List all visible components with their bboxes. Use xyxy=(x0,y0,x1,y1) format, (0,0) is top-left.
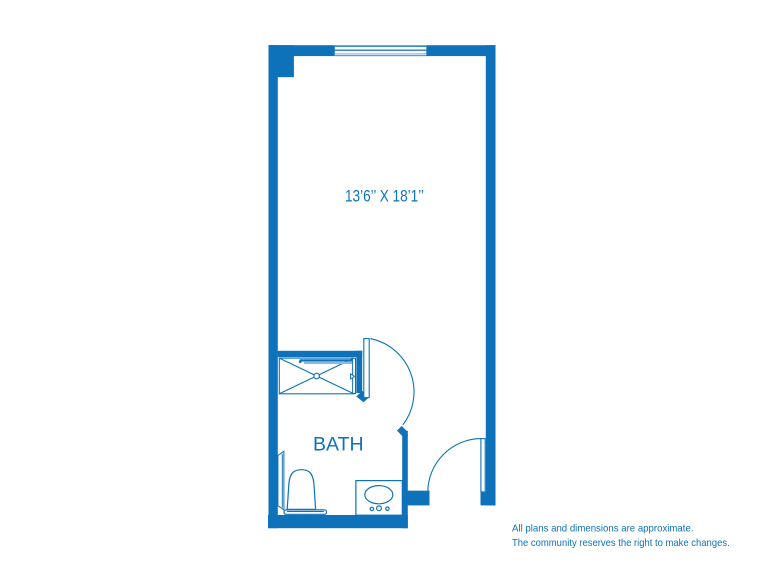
svg-text:13’6’’ X 18’1’’: 13’6’’ X 18’1’’ xyxy=(345,188,424,206)
svg-text:BATH: BATH xyxy=(313,434,364,456)
svg-text:All plans and dimensions are a: All plans and dimensions are approximate… xyxy=(512,523,694,535)
svg-text:The community reserves the rig: The community reserves the right to make… xyxy=(512,537,730,549)
